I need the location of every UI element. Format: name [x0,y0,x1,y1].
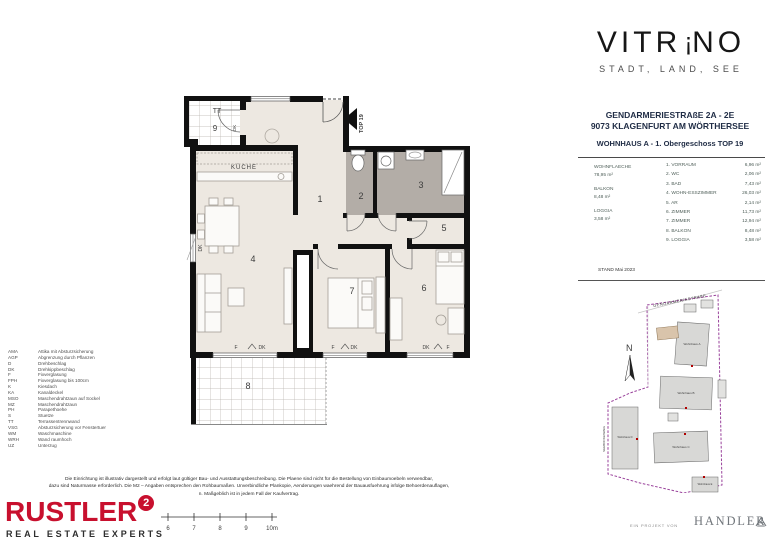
entrance-dot [636,438,638,440]
legend-abbr: UZ [8,443,38,449]
wall [184,96,246,101]
room-area: 26,03 m² [742,191,761,200]
room-area: 3,58 m² [745,238,761,247]
loggia-tt-label: TT [213,108,222,115]
washing-machine-icon [378,152,394,169]
brand-block: VITR!NO STADT, LAND, SEE [575,26,767,74]
room-list: 1. VORRAUM6,96 m² 2. WC2,06 m² 3. BAD7,4… [666,163,761,248]
summary-label: BALKON [594,187,664,192]
room-number-9: 9 [213,124,218,133]
handler-roof-icon [754,516,768,528]
wall [290,96,323,102]
chair [198,230,205,239]
scale-label: 7 [192,526,196,532]
room-name: 8. BALKON [666,229,691,238]
site-plan: GENDARMERIESTRAßE SEEBOCKENWEG N Wohnhau… [600,287,765,493]
scale-label: 10m [266,526,278,532]
wall [190,145,196,234]
room-row: 3. BAD7,43 m² [666,182,761,191]
room-area: 8,48 m² [745,229,761,238]
window-label-f: F [446,345,449,351]
rustler-superscript-badge: 2 [138,495,154,511]
tv-board [284,268,292,324]
floor-plan: TOP 19 [180,88,480,433]
room-row: 8. BALKON8,48 m² [666,229,761,238]
room-number-8: 8 [245,381,250,391]
disclaimer: Die Einrichtung ist illustrativ dargeste… [8,476,490,498]
wall [407,213,412,221]
balcony-tiles [197,358,326,425]
room-number-1: 1 [317,194,322,204]
unit-title: WOHNHAUS A - 1. Obergeschoss TOP 19 [575,139,765,148]
entrance-dot [703,476,705,478]
room-name: 5. AR [666,201,678,210]
wall-balcony [191,358,196,425]
scale-label: 8 [218,526,222,532]
window-label-dk: DK [259,345,267,351]
scale-labels: 6 7 8 9 10m [166,526,278,532]
wall [373,150,377,213]
rustler-wordmark: RUSTLER2 [5,496,165,528]
outbuilding [684,304,696,312]
room-row: 5. AR2,14 m² [666,201,761,210]
entrance-dot [685,407,687,409]
abbreviation-legend: AMAAttika mit Absturzsicherung AGPAbgren… [8,349,178,448]
building-e-label: Wohnhaus E [698,482,713,486]
pillow [451,252,462,262]
wall [385,249,390,353]
window-label-dk: DK [351,345,359,351]
legend-text: Unterzug [38,443,57,449]
summary-label: WOHNFLAECHE [594,165,664,170]
desk [448,308,464,334]
wall [338,244,392,249]
room-number-2: 2 [358,191,363,201]
outbuilding [668,413,678,421]
room-row: 1. VORRAUM6,96 m² [666,163,761,172]
room-area: 2,06 m² [745,172,761,181]
room-number-7: 7 [349,286,354,296]
scale-label: 6 [166,526,170,532]
window-label-f: F [234,345,237,351]
address-line2: 9073 KLAGENFURT AM WÖRTHERSEE [575,121,765,132]
summary-value: 3,58 m² [594,217,664,222]
room-area: 12,94 m² [742,219,761,228]
wall [240,96,246,110]
divider-line [578,157,765,158]
scale-label: 9 [244,526,248,532]
room-row: 9. LOGGIA3,58 m² [666,238,761,247]
building-b-label: Wohnhaus B [677,391,694,395]
door-label-dk: DK [232,125,237,131]
rustler-subtitle: REAL ESTATE EXPERTS [6,529,165,539]
room-name: 3. BAD [666,182,681,191]
stand-date: STAND Mai 2023 [598,268,635,273]
wall [190,145,298,151]
wall [412,244,470,249]
buildings [612,300,726,492]
logo-exclamation-mark: ! [681,30,692,58]
summary-value: 8,48 m² [594,195,664,200]
building-d-label: Wohnhaus D [618,435,633,439]
room-row: 4. WOHN-ESSZIMMER26,03 m² [666,191,761,200]
divider-line [578,280,765,281]
logo-text-pre: VITR [597,26,681,59]
entrance-dot [684,433,686,435]
legend-row: UZUnterzug [8,443,178,449]
room-name: 4. WOHN-ESSZIMMER [666,191,717,200]
logo-text-post: NO [692,26,745,59]
disclaimer-line2: dazu sind Naturmasse erforderlich. Die M… [8,483,490,490]
street-label-left: SEEBOCKENWEG [602,425,606,452]
room-area: 6,96 m² [745,163,761,172]
room-name: 6. ZIMMER [666,210,690,219]
room-row: 6. ZIMMER11,73 m² [666,210,761,219]
north-arrow-icon [625,355,630,381]
kitchen-label: KÜCHE [231,164,257,171]
flyer-page: VITR!NO STADT, LAND, SEE GENDARMERIESTRA… [0,0,770,543]
balcony-edge [191,424,327,425]
room-number-4: 4 [250,254,255,264]
outbuilding [701,300,713,308]
wall [407,238,412,249]
top19-label: TOP 19 [359,114,365,133]
entrance-dot [691,365,693,367]
vitrino-logo: VITR!NO [575,26,767,60]
room-area: 7,43 m² [745,182,761,191]
room-number-3: 3 [418,180,423,190]
summary-label: LOGGIA [594,209,664,214]
wall [246,96,251,102]
chair [224,246,233,253]
room-name: 7. ZIMMER [666,219,690,228]
north-arrow-icon [630,355,635,381]
room-name: 1. VORRAUM [666,163,696,172]
chair [209,246,218,253]
room-name: 9. LOGGIA [666,238,690,247]
wall [464,146,470,358]
wall [190,352,213,358]
room-area: 11,73 m² [742,210,761,219]
outbuilding [718,380,726,398]
chair [224,198,233,205]
wall [190,262,196,358]
project-prefix: EIN PROJEKT VON [630,523,678,528]
address-line1: GENDARMERIESTRAßE 2A - 2E [575,110,765,121]
chair [209,198,218,205]
wardrobe-room7 [376,277,385,333]
toilet-tank [351,150,365,155]
room-row: 7. ZIMMER12,94 m² [666,219,761,228]
rustler-logo: RUSTLER2 REAL ESTATE EXPERTS [5,496,165,539]
scale-bar: 6 7 8 9 10m [158,509,283,535]
shaft-void [297,255,309,348]
room-area: 2,14 m² [745,201,761,210]
roof-glyph [756,518,766,526]
chair [198,214,205,223]
rustler-name: RUSTLER [5,496,137,527]
pillow [438,252,449,262]
summary-value: 78,95 m² [594,173,664,178]
highlighted-unit [656,326,678,340]
room-number-6: 6 [421,283,426,293]
coffee-table [228,288,244,306]
area-summary-column: WOHNFLAECHE 78,95 m² BALKON 8,48 m² LOGG… [594,165,664,222]
brand-tagline: STADT, LAND, SEE [575,64,767,74]
north-label: N [626,343,633,353]
toilet-icon [352,155,364,171]
room-number-5: 5 [441,223,446,233]
window-label-f: F [331,345,334,351]
disclaimer-line1: Die Einrichtung ist illustrativ dargeste… [8,476,490,483]
wardrobe-room6 [390,298,402,340]
wall [293,145,298,215]
wall [343,213,347,218]
building-c-label: Wohnhaus C [672,445,690,449]
pillow [362,281,372,294]
wall [453,352,470,358]
street-label-top: GENDARMERIESTRAßE [653,293,707,308]
wall [313,244,318,249]
room-name: 2. WC [666,172,679,181]
pillow [362,297,372,310]
window-label-dk: DK [198,244,204,252]
address-block: GENDARMERIESTRAßE 2A - 2E 9073 KLAGENFUR… [575,110,765,148]
wall [365,213,378,218]
window-label-dk: DK [423,345,431,351]
sofa [197,274,221,332]
dining-table [205,206,239,246]
building-a-label: Wohnhaus A [684,342,701,346]
room-row: 2. WC2,06 m² [666,172,761,181]
